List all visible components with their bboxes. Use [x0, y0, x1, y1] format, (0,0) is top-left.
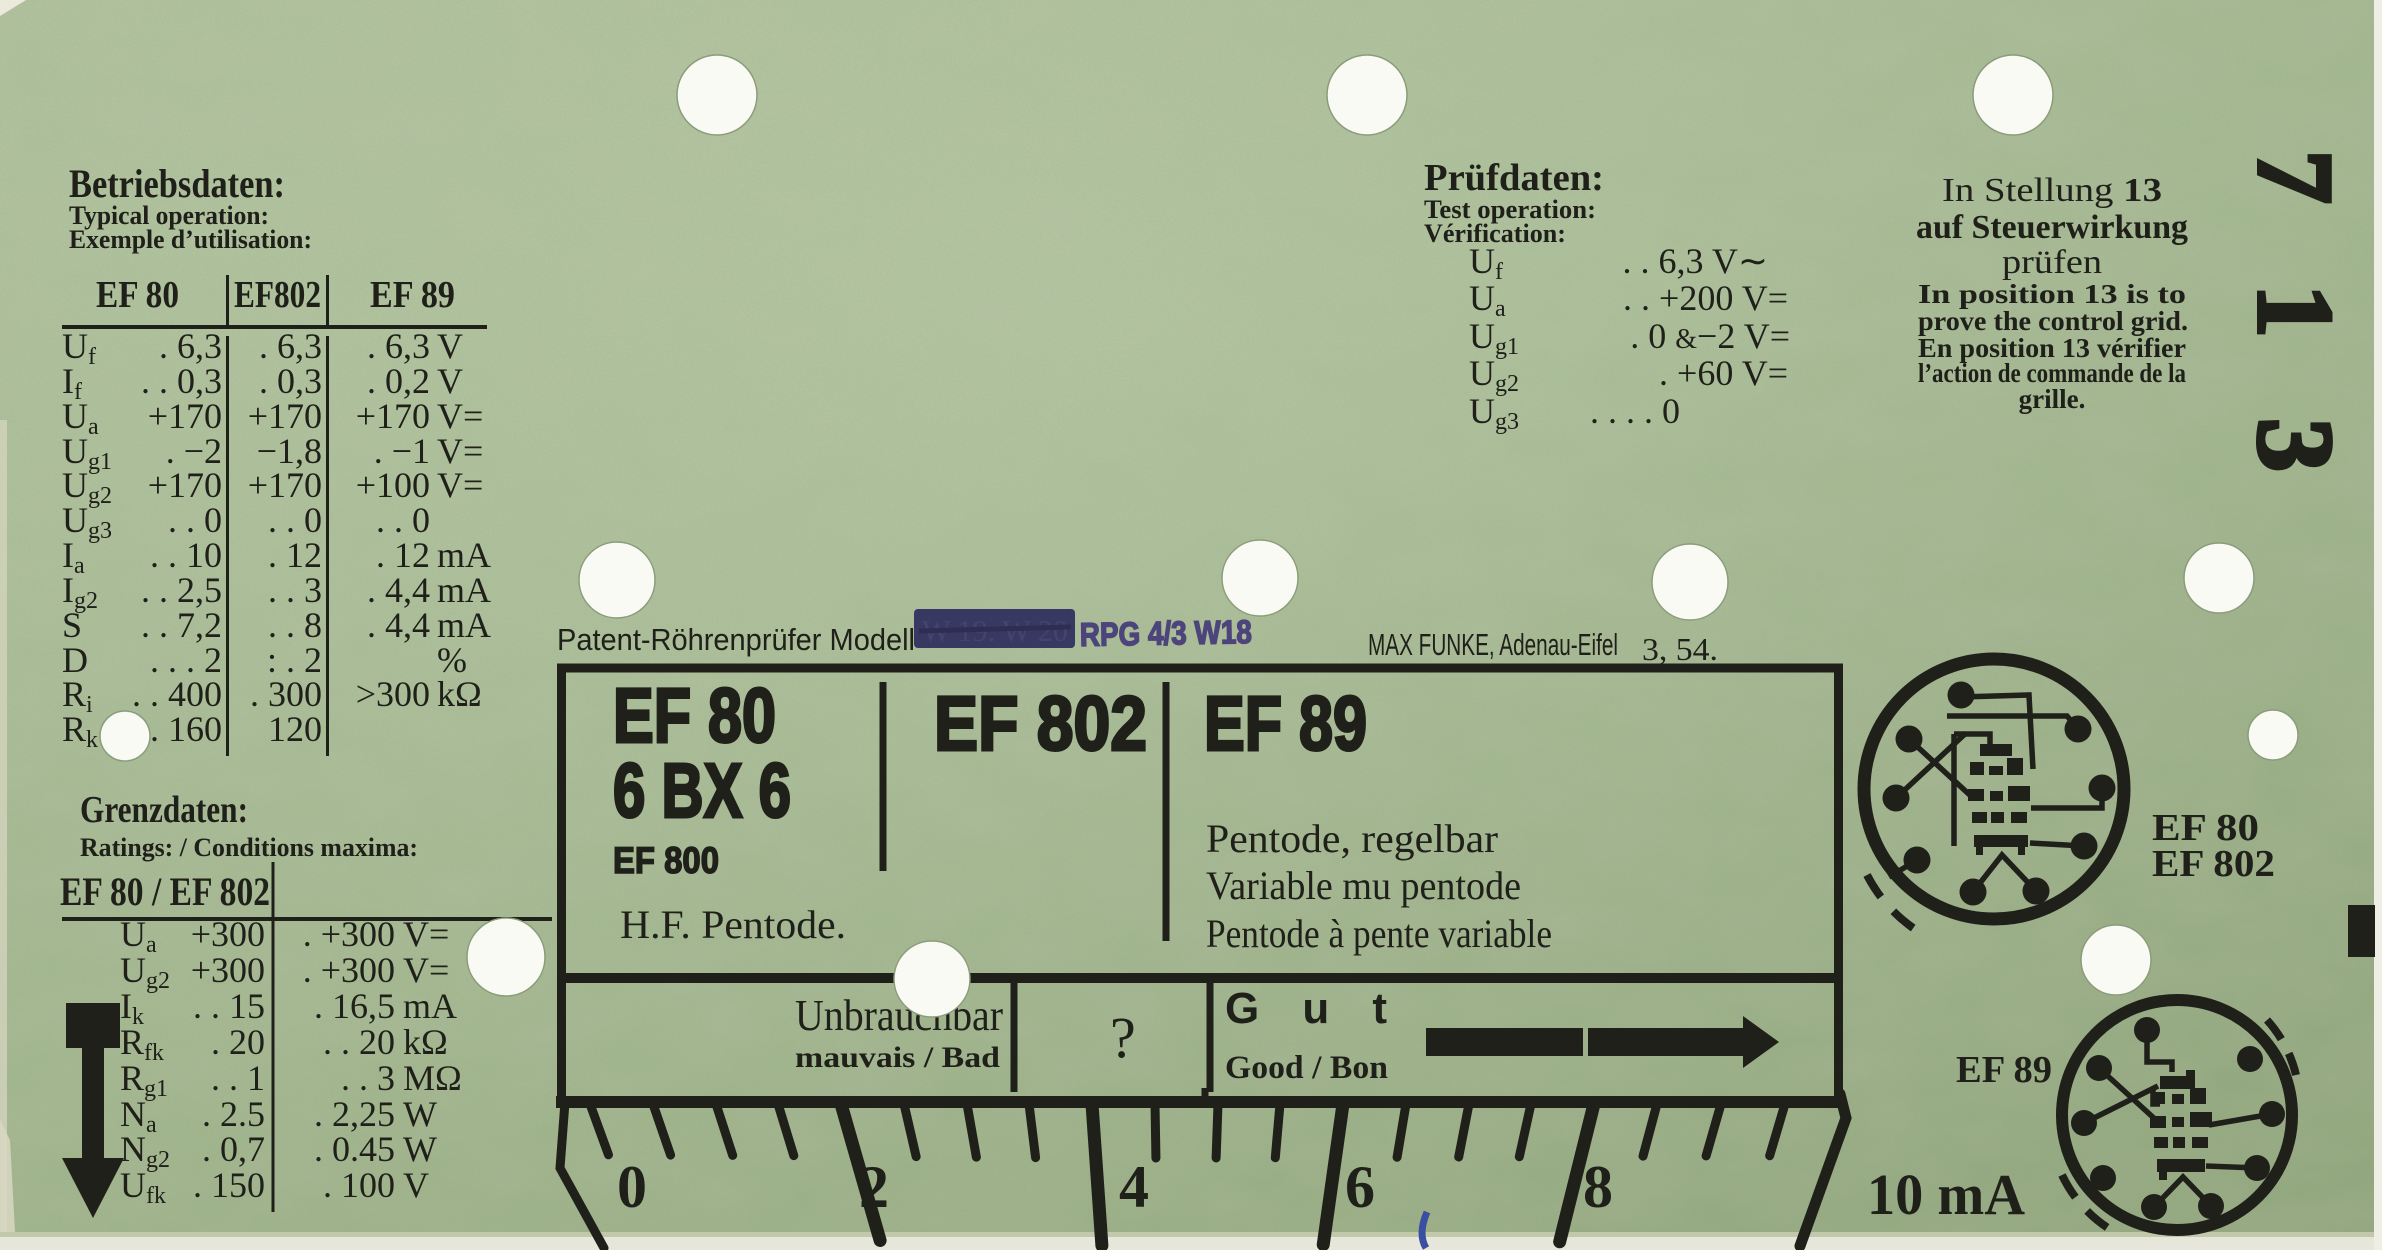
svg-text:+100: +100: [356, 465, 430, 505]
svg-text:. 6,3: . 6,3: [259, 326, 322, 366]
svg-text:kΩ: kΩ: [437, 674, 482, 714]
svg-text:EF 802: EF 802: [2152, 843, 2275, 885]
svg-text:2: 2: [859, 1154, 889, 1220]
svg-text:Grenzdaten:: Grenzdaten:: [80, 789, 248, 831]
svg-text:Exemple d’utilisation:: Exemple d’utilisation:: [69, 225, 312, 254]
svg-text:. . . . 0: . . . . 0: [1590, 391, 1680, 431]
svg-text:mA: mA: [437, 535, 491, 575]
svg-text:. 6,3: . 6,3: [159, 326, 222, 366]
svg-text:prüfen: prüfen: [2002, 244, 2102, 281]
svg-text:. . 10: . . 10: [150, 535, 222, 575]
svg-text:. +60 V=: . +60 V=: [1659, 353, 1788, 393]
svg-text:EF 89: EF 89: [1956, 1049, 2052, 1091]
svg-text:Patent-Röhrenprüfer Modell: Patent-Röhrenprüfer Modell: [557, 622, 915, 657]
svg-text:grille.: grille.: [2019, 384, 2086, 414]
svg-text:. 4,4: . 4,4: [367, 570, 430, 610]
svg-text:. 150: . 150: [193, 1165, 265, 1205]
svg-text:. 2.5: . 2.5: [202, 1094, 265, 1134]
svg-text:EF802: EF802: [234, 274, 321, 316]
svg-text:mA: mA: [403, 986, 457, 1026]
svg-text:auf Steuerwirkung: auf Steuerwirkung: [1916, 209, 2188, 246]
svg-text:Vérification:: Vérification:: [1424, 219, 1566, 248]
svg-text:S: S: [62, 605, 82, 645]
svg-text:RPG 4/3 W18: RPG 4/3 W18: [1079, 613, 1252, 653]
svg-text:prove the control grid.: prove the control grid.: [1918, 306, 2188, 336]
svg-text:Variable mu pentode: Variable mu pentode: [1206, 863, 1521, 908]
svg-text:MΩ: MΩ: [403, 1058, 462, 1098]
svg-text:+170: +170: [356, 396, 430, 436]
svg-text:. . 2,5: . . 2,5: [141, 570, 222, 610]
svg-text:Pentode à pente variable: Pentode à pente variable: [1206, 911, 1552, 956]
svg-text:. . 0: . . 0: [168, 500, 222, 540]
svg-text:. +300: . +300: [303, 914, 395, 954]
svg-text:>300: >300: [356, 674, 430, 714]
svg-text:6: 6: [1345, 1154, 1375, 1220]
svg-text:. 300: . 300: [250, 674, 322, 714]
svg-text:EF 800: EF 800: [613, 840, 719, 881]
svg-text:. . 1: . . 1: [211, 1058, 265, 1098]
svg-text:mauvais / Bad: mauvais / Bad: [795, 1041, 1000, 1074]
svg-text:V=: V=: [403, 914, 449, 954]
svg-text:mA: mA: [437, 570, 491, 610]
svg-text:. . 0: . . 0: [268, 500, 322, 540]
svg-text:MAX FUNKE, Adenau-Eifel: MAX FUNKE, Adenau-Eifel: [1368, 627, 1618, 662]
svg-text:V=: V=: [403, 950, 449, 990]
svg-text:4: 4: [1119, 1154, 1149, 1220]
svg-text:. . 3: . . 3: [341, 1058, 395, 1098]
svg-text:EF 89: EF 89: [1204, 681, 1367, 767]
svg-text:. 160: . 160: [150, 709, 222, 749]
svg-text:Pentode, regelbar: Pentode, regelbar: [1206, 816, 1498, 861]
svg-text:+300: +300: [191, 914, 265, 954]
svg-text:Good / Bon: Good / Bon: [1225, 1050, 1388, 1086]
svg-text:. . 6,3 V∼: . . 6,3 V∼: [1622, 241, 1768, 281]
svg-text:V: V: [403, 1165, 429, 1205]
svg-text:+170: +170: [148, 396, 222, 436]
svg-text:. . 0: . . 0: [376, 500, 430, 540]
svg-text:H.F. Pentode.: H.F. Pentode.: [620, 902, 846, 947]
svg-text:10 mA: 10 mA: [1867, 1162, 2025, 1227]
svg-text:V: V: [437, 326, 463, 366]
svg-text:?: ?: [1110, 1005, 1136, 1070]
svg-text:EF 80: EF 80: [613, 673, 776, 759]
svg-text:. . 0,3: . . 0,3: [141, 361, 222, 401]
svg-text:8: 8: [1583, 1154, 1613, 1220]
svg-text:. . 7,2: . . 7,2: [141, 605, 222, 645]
svg-text:. . 3: . . 3: [268, 570, 322, 610]
svg-text:W: W: [403, 1094, 437, 1134]
svg-text:. . +200 V=: . . +200 V=: [1623, 278, 1788, 318]
svg-text:. . 15: . . 15: [193, 986, 265, 1026]
svg-text:V=: V=: [437, 465, 483, 505]
svg-text:EF 89: EF 89: [370, 274, 455, 316]
svg-text:. 0,3: . 0,3: [259, 361, 322, 401]
svg-text:Ratings: / Conditions maxima:: Ratings: / Conditions maxima:: [80, 833, 418, 862]
svg-text:EF 802: EF 802: [934, 681, 1147, 767]
svg-text:mA: mA: [437, 605, 491, 645]
svg-text:. 0,7: . 0,7: [202, 1129, 265, 1169]
svg-text:In Stellung 13: In Stellung 13: [1942, 172, 2162, 209]
svg-text:V: V: [437, 361, 463, 401]
svg-text:+170: +170: [248, 465, 322, 505]
svg-text:. . 20: . . 20: [323, 1022, 395, 1062]
svg-text:. 2,25: . 2,25: [314, 1094, 395, 1134]
svg-text:120: 120: [268, 709, 322, 749]
svg-text:. 4,4: . 4,4: [367, 605, 430, 645]
svg-text:EF 80: EF 80: [96, 274, 179, 316]
svg-text:+170: +170: [248, 396, 322, 436]
svg-text:W: W: [403, 1129, 437, 1169]
svg-text:Betriebsdaten:: Betriebsdaten:: [69, 161, 285, 206]
svg-text:In position 13 is to: In position 13 is to: [1918, 279, 2186, 309]
svg-text:3, 54.: 3, 54.: [1642, 631, 1718, 667]
svg-text:. 0 &−2 V=: . 0 &−2 V=: [1630, 316, 1790, 356]
svg-text:. 12: . 12: [376, 535, 430, 575]
svg-text:. 12: . 12: [268, 535, 322, 575]
svg-text:. 100: . 100: [323, 1165, 395, 1205]
svg-text:. 6,3: . 6,3: [367, 326, 430, 366]
svg-text:0: 0: [617, 1154, 647, 1220]
svg-text:713: 713: [2235, 150, 2354, 472]
svg-text:. . 400: . . 400: [132, 674, 222, 714]
svg-text:+170: +170: [148, 465, 222, 505]
svg-text:. +300: . +300: [303, 950, 395, 990]
svg-text:. 16,5: . 16,5: [314, 986, 395, 1026]
svg-text:+300: +300: [191, 950, 265, 990]
svg-text:. 0,2: . 0,2: [367, 361, 430, 401]
svg-text:Prüfdaten:: Prüfdaten:: [1424, 157, 1604, 199]
svg-text:kΩ: kΩ: [403, 1022, 448, 1062]
svg-text:6 BX 6: 6 BX 6: [613, 748, 791, 834]
svg-text:V=: V=: [437, 396, 483, 436]
svg-text:. . 8: . . 8: [268, 605, 322, 645]
svg-text:EF 80 / EF 802: EF 80 / EF 802: [60, 869, 270, 914]
svg-text:. 20: . 20: [211, 1022, 265, 1062]
svg-text:. 0.45: . 0.45: [314, 1129, 395, 1169]
